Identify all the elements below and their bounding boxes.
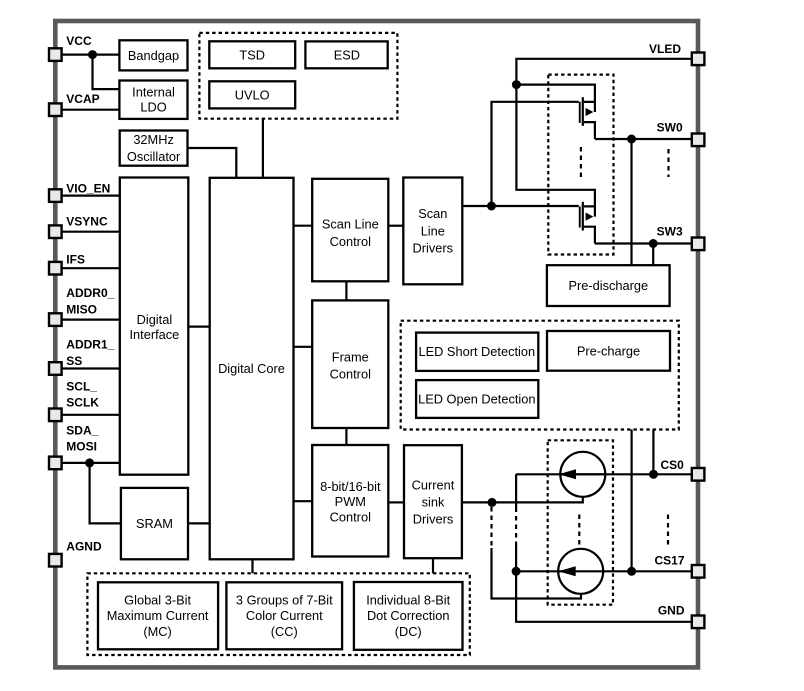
- svg-text:ADDR1_: ADDR1_: [66, 338, 114, 352]
- svg-text:Line: Line: [421, 224, 445, 239]
- svg-text:VCAP: VCAP: [66, 92, 99, 106]
- svg-text:(DC): (DC): [395, 624, 422, 639]
- svg-text:VCC: VCC: [66, 34, 92, 48]
- svg-text:MISO: MISO: [66, 303, 97, 317]
- svg-text:VLED: VLED: [649, 42, 681, 56]
- svg-text:LDO: LDO: [140, 100, 166, 115]
- svg-text:SRAM: SRAM: [136, 516, 173, 531]
- svg-text:UVLO: UVLO: [235, 87, 270, 102]
- svg-text:Color Current: Color Current: [246, 608, 323, 623]
- svg-text:SW0: SW0: [657, 121, 683, 135]
- svg-text:VIO_EN: VIO_EN: [66, 181, 110, 195]
- svg-text:Pre-discharge: Pre-discharge: [568, 278, 648, 293]
- svg-text:3 Groups of 7-Bit: 3 Groups of 7-Bit: [236, 592, 333, 607]
- svg-text:CS17: CS17: [654, 553, 684, 567]
- svg-text:ADDR0_: ADDR0_: [66, 286, 114, 300]
- svg-text:Internal: Internal: [132, 85, 175, 100]
- svg-text:Current: Current: [412, 478, 455, 493]
- svg-text:Oscillator: Oscillator: [127, 149, 181, 164]
- svg-text:SW3: SW3: [657, 225, 683, 239]
- svg-text:Pre-charge: Pre-charge: [577, 344, 640, 359]
- svg-text:IFS: IFS: [66, 253, 85, 267]
- svg-text:LED Open Detection: LED Open Detection: [418, 391, 535, 406]
- svg-text:AGND: AGND: [66, 540, 102, 554]
- svg-text:TSD: TSD: [239, 48, 265, 63]
- svg-text:GND: GND: [658, 604, 685, 618]
- svg-text:(CC): (CC): [271, 624, 298, 639]
- svg-text:LED Short Detection: LED Short Detection: [418, 344, 535, 359]
- svg-text:CS0: CS0: [660, 458, 684, 472]
- svg-text:Scan Line: Scan Line: [322, 217, 379, 232]
- svg-text:Frame: Frame: [332, 349, 369, 364]
- svg-text:Control: Control: [330, 366, 371, 381]
- svg-text:Dot Correction: Dot Correction: [367, 608, 450, 623]
- svg-text:SCL_: SCL_: [66, 380, 97, 394]
- svg-text:Control: Control: [330, 234, 371, 249]
- svg-text:Drivers: Drivers: [413, 240, 454, 255]
- svg-text:Individual 8-Bit: Individual 8-Bit: [366, 592, 450, 607]
- svg-text:VSYNC: VSYNC: [66, 215, 108, 229]
- svg-text:Maximum Current: Maximum Current: [107, 608, 209, 623]
- svg-text:Drivers: Drivers: [413, 512, 454, 527]
- svg-text:ESD: ESD: [334, 48, 360, 63]
- svg-text:SS: SS: [66, 354, 82, 368]
- svg-text:Control: Control: [330, 510, 371, 525]
- svg-text:(MC): (MC): [143, 624, 171, 639]
- svg-text:Digital: Digital: [137, 312, 173, 327]
- svg-text:Digital Core: Digital Core: [218, 361, 285, 376]
- svg-text:Bandgap: Bandgap: [128, 48, 179, 63]
- svg-text:SDA_: SDA_: [66, 424, 98, 438]
- svg-text:Scan: Scan: [418, 206, 447, 221]
- svg-text:32MHz: 32MHz: [133, 132, 174, 147]
- svg-text:Global 3-Bit: Global 3-Bit: [124, 592, 191, 607]
- svg-text:SCLK: SCLK: [66, 396, 99, 410]
- svg-text:sink: sink: [422, 495, 445, 510]
- svg-text:8-bit/16-bit: 8-bit/16-bit: [320, 479, 381, 494]
- svg-text:PWM: PWM: [335, 494, 366, 509]
- svg-text:MOSI: MOSI: [66, 440, 97, 454]
- svg-text:Interface: Interface: [130, 327, 180, 342]
